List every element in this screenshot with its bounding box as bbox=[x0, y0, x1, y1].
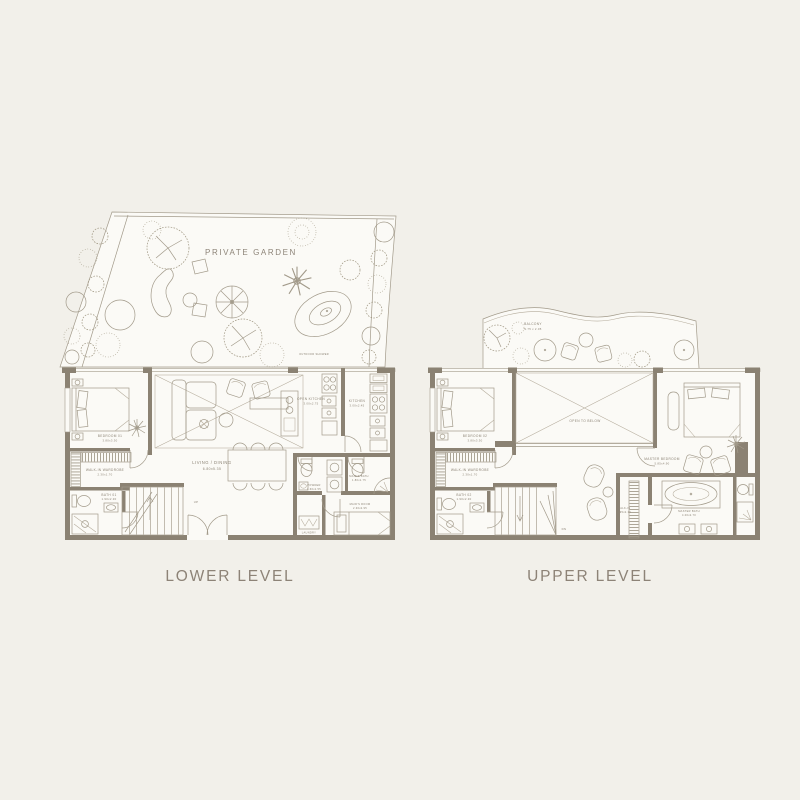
maids-room-label: MAID'S ROOM bbox=[350, 502, 371, 506]
walkin-label: WALK-IN bbox=[618, 506, 631, 510]
laundry-label: LAUNDRY bbox=[302, 531, 316, 535]
kitchen-dims: 3.00x2.45 bbox=[350, 404, 365, 408]
private-garden: PRIVATE GARDEN OUTDOOR SHOWER bbox=[60, 212, 396, 367]
living-dims: 6.80x5.35 bbox=[203, 467, 222, 471]
open-kitchen-dims: 3.00x2.75 bbox=[304, 402, 319, 406]
lower-level-title: LOWER LEVEL bbox=[165, 568, 294, 585]
stairs-up-label: UP bbox=[194, 500, 199, 504]
wardrobe2-dims: 2.30x1.70 bbox=[463, 473, 478, 477]
floorplan-canvas: PRIVATE GARDEN OUTDOOR SHOWER bbox=[0, 0, 800, 800]
bedroom2-label: BEDROOM 02 bbox=[463, 434, 487, 438]
lower-floor: BEDROOM 01 3.80x3.30 WALK-IN WARDROBE 2.… bbox=[62, 368, 395, 541]
master-bath-dims: 4.00x2.70 bbox=[682, 513, 696, 517]
maids-room-dims: 2.30x2.95 bbox=[353, 506, 367, 510]
maids-bath-dims: 1.80x1.75 bbox=[352, 478, 366, 482]
open-kitchen-label: OPEN KITCHEN bbox=[297, 397, 325, 401]
kitchen-label: KITCHEN bbox=[349, 399, 366, 403]
bath2-dims: 1.90x2.30 bbox=[457, 497, 472, 501]
bedroom1-dims: 3.80x3.30 bbox=[103, 439, 118, 443]
wardrobe1-label: WALK-IN WARDROBE bbox=[86, 468, 124, 472]
window-band bbox=[430, 369, 760, 372]
wardrobe2-label: WALK-IN WARDROBE bbox=[451, 468, 489, 472]
walkin-dims: 1.95x2.10 bbox=[617, 510, 631, 514]
window-band bbox=[430, 388, 435, 432]
private-garden-label: PRIVATE GARDEN bbox=[205, 248, 297, 257]
open-to-below-label: OPEN TO BELOW bbox=[569, 419, 600, 423]
powder-label: POWDER bbox=[307, 483, 320, 487]
outdoor-shower-label: OUTDOOR SHOWER bbox=[299, 352, 329, 356]
wardrobe1-dims: 2.30x1.70 bbox=[98, 473, 113, 477]
master-bedroom-dims: 5.85x4.90 bbox=[655, 462, 670, 466]
upper-level: BALCONY 9.75 x 2.05 bbox=[428, 308, 760, 585]
bath1-dims: 1.90x2.30 bbox=[102, 497, 117, 501]
window-band bbox=[65, 388, 70, 432]
upper-level-title: UPPER LEVEL bbox=[527, 568, 653, 585]
upper-floor: BEDROOM 02 3.80x3.30 WALK-IN WARDROBE 2.… bbox=[428, 368, 760, 541]
balcony-dims: 9.75 x 2.05 bbox=[524, 327, 541, 331]
umbrella-icon bbox=[216, 286, 248, 318]
lower-level: PRIVATE GARDEN OUTDOOR SHOWER bbox=[60, 212, 396, 585]
maids-bath-label: MAID'S BATH bbox=[349, 474, 368, 478]
balcony-label: BALCONY bbox=[524, 322, 542, 326]
floorplan-page: PRIVATE GARDEN OUTDOOR SHOWER bbox=[0, 0, 800, 800]
living-label: LIVING / DINING bbox=[192, 460, 231, 465]
powder-dims: 1.60x1.55 bbox=[307, 487, 321, 491]
window-band bbox=[65, 369, 395, 372]
master-bedroom-label: MASTER BEDROOM bbox=[644, 457, 680, 461]
stairs-down-label: DN bbox=[562, 527, 567, 531]
bedroom2-dims: 3.80x3.30 bbox=[468, 439, 483, 443]
master-bath-label: MASTER BATH bbox=[678, 509, 700, 513]
bedroom1-label: BEDROOM 01 bbox=[98, 434, 122, 438]
balcony: BALCONY 9.75 x 2.05 bbox=[483, 308, 699, 368]
